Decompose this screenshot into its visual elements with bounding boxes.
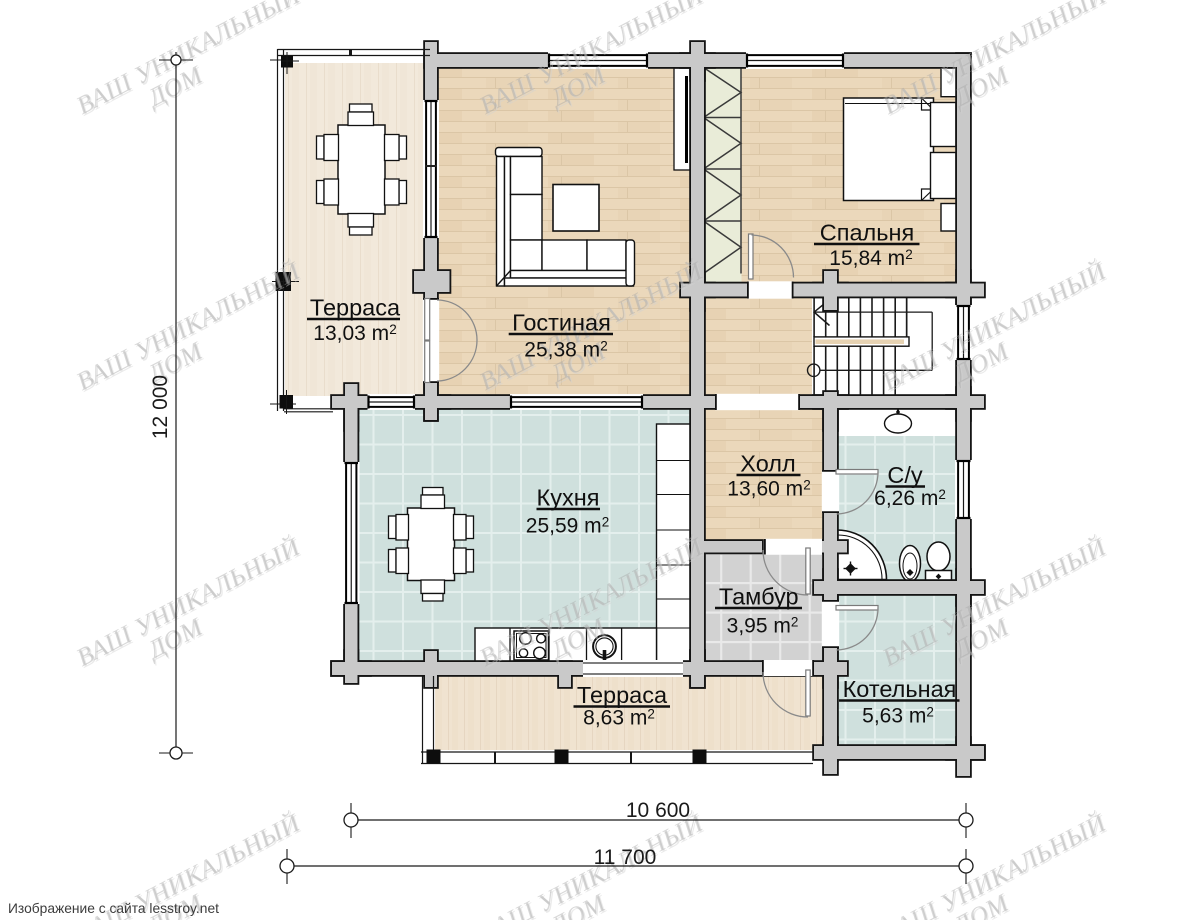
svg-text:15,84 m2: 15,84 m2	[829, 247, 912, 270]
svg-text:13,60 m2: 13,60 m2	[727, 478, 810, 501]
svg-text:Терраса: Терраса	[310, 295, 401, 321]
svg-text:3,95 m2: 3,95 m2	[727, 615, 799, 638]
svg-text:10 600: 10 600	[626, 799, 690, 822]
svg-text:Гостиная: Гостиная	[512, 310, 611, 336]
svg-text:6,26 m2: 6,26 m2	[874, 487, 946, 510]
svg-text:8,63 m2: 8,63 m2	[583, 707, 655, 730]
svg-text:12 000: 12 000	[149, 375, 172, 439]
svg-text:25,38 m2: 25,38 m2	[524, 339, 607, 362]
svg-text:13,03 m2: 13,03 m2	[313, 322, 396, 345]
svg-text:Холл: Холл	[740, 451, 795, 477]
svg-text:Котельная: Котельная	[843, 676, 957, 702]
svg-text:С/у: С/у	[887, 462, 923, 488]
svg-text:25,59 m2: 25,59 m2	[526, 515, 609, 538]
svg-text:Терраса: Терраса	[577, 682, 668, 708]
svg-text:Кухня: Кухня	[537, 485, 600, 511]
svg-text:5,63 m2: 5,63 m2	[862, 705, 934, 728]
svg-text:Изображение с сайта lesstroy.n: Изображение с сайта lesstroy.net	[8, 901, 219, 916]
svg-text:Тамбур: Тамбур	[719, 584, 799, 610]
svg-text:Спальня: Спальня	[820, 220, 914, 246]
svg-text:11 700: 11 700	[594, 846, 657, 869]
